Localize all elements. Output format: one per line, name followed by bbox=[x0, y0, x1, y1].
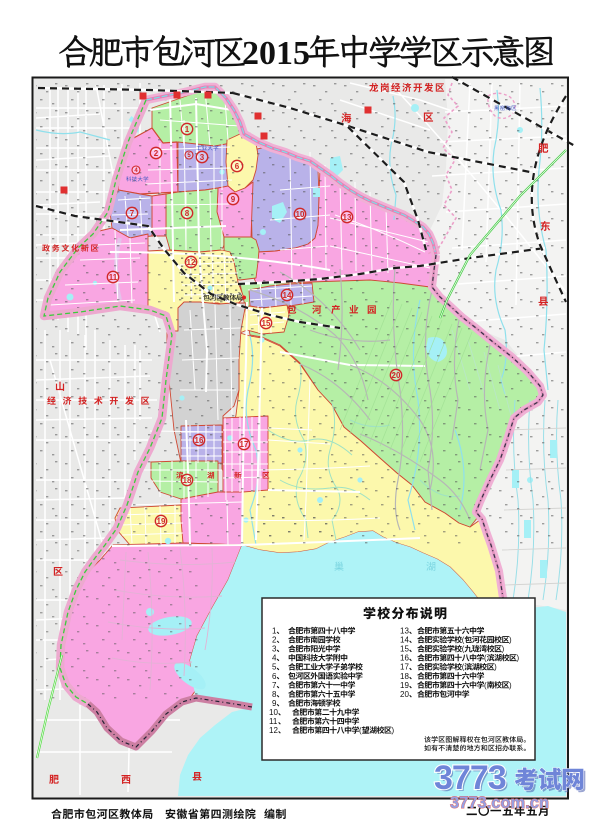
svg-text:1: 1 bbox=[185, 125, 190, 134]
svg-text:(: ( bbox=[462, 636, 465, 645]
svg-text:2: 2 bbox=[154, 149, 159, 158]
svg-text:12: 12 bbox=[187, 258, 196, 267]
svg-text:19: 19 bbox=[157, 517, 166, 526]
svg-text:2: 2 bbox=[272, 636, 277, 645]
svg-text:3773.com.cn: 3773.com.cn bbox=[450, 794, 549, 812]
svg-text:18: 18 bbox=[400, 672, 409, 681]
svg-text:3773: 3773 bbox=[434, 759, 506, 797]
svg-text:20: 20 bbox=[392, 371, 401, 380]
svg-text:15: 15 bbox=[400, 645, 409, 654]
svg-text:7: 7 bbox=[130, 209, 135, 218]
svg-text:13: 13 bbox=[400, 627, 409, 636]
svg-text:): ) bbox=[502, 645, 505, 654]
svg-text:(: ( bbox=[484, 654, 487, 663]
svg-text:10: 10 bbox=[269, 708, 278, 717]
svg-text:): ) bbox=[509, 636, 512, 645]
svg-text:8: 8 bbox=[272, 690, 277, 699]
svg-text:18: 18 bbox=[183, 476, 192, 485]
svg-text:5: 5 bbox=[272, 663, 277, 672]
svg-text:20: 20 bbox=[400, 690, 409, 699]
svg-text:14: 14 bbox=[400, 636, 409, 645]
svg-text:(: ( bbox=[462, 645, 465, 654]
svg-text:6: 6 bbox=[272, 672, 277, 681]
svg-text:11: 11 bbox=[269, 717, 278, 726]
svg-text:): ) bbox=[494, 663, 497, 672]
svg-text:14: 14 bbox=[283, 291, 292, 300]
svg-text:13: 13 bbox=[343, 213, 352, 222]
svg-text:(: ( bbox=[484, 681, 487, 690]
svg-text:(: ( bbox=[359, 726, 362, 735]
svg-text:3: 3 bbox=[272, 645, 277, 654]
svg-text:16: 16 bbox=[195, 436, 204, 445]
svg-text:9: 9 bbox=[272, 699, 277, 708]
svg-text:9: 9 bbox=[231, 195, 236, 204]
svg-text:17: 17 bbox=[240, 440, 249, 449]
svg-text:(: ( bbox=[462, 663, 465, 672]
svg-text:11: 11 bbox=[109, 273, 118, 282]
svg-text:15: 15 bbox=[262, 319, 271, 328]
svg-text:2015: 2015 bbox=[242, 35, 310, 72]
svg-text:16: 16 bbox=[400, 654, 409, 663]
svg-text:17: 17 bbox=[400, 663, 409, 672]
svg-text:): ) bbox=[509, 681, 512, 690]
svg-text:1: 1 bbox=[272, 627, 277, 636]
svg-text:): ) bbox=[392, 726, 395, 735]
svg-text:3: 3 bbox=[200, 153, 205, 162]
svg-text:19: 19 bbox=[400, 681, 409, 690]
svg-text:8: 8 bbox=[185, 209, 190, 218]
svg-text:6: 6 bbox=[235, 162, 240, 171]
svg-text:4: 4 bbox=[272, 654, 277, 663]
svg-text:10: 10 bbox=[296, 210, 305, 219]
svg-text:12: 12 bbox=[269, 726, 278, 735]
svg-text:7: 7 bbox=[272, 681, 277, 690]
svg-text:): ) bbox=[517, 654, 520, 663]
